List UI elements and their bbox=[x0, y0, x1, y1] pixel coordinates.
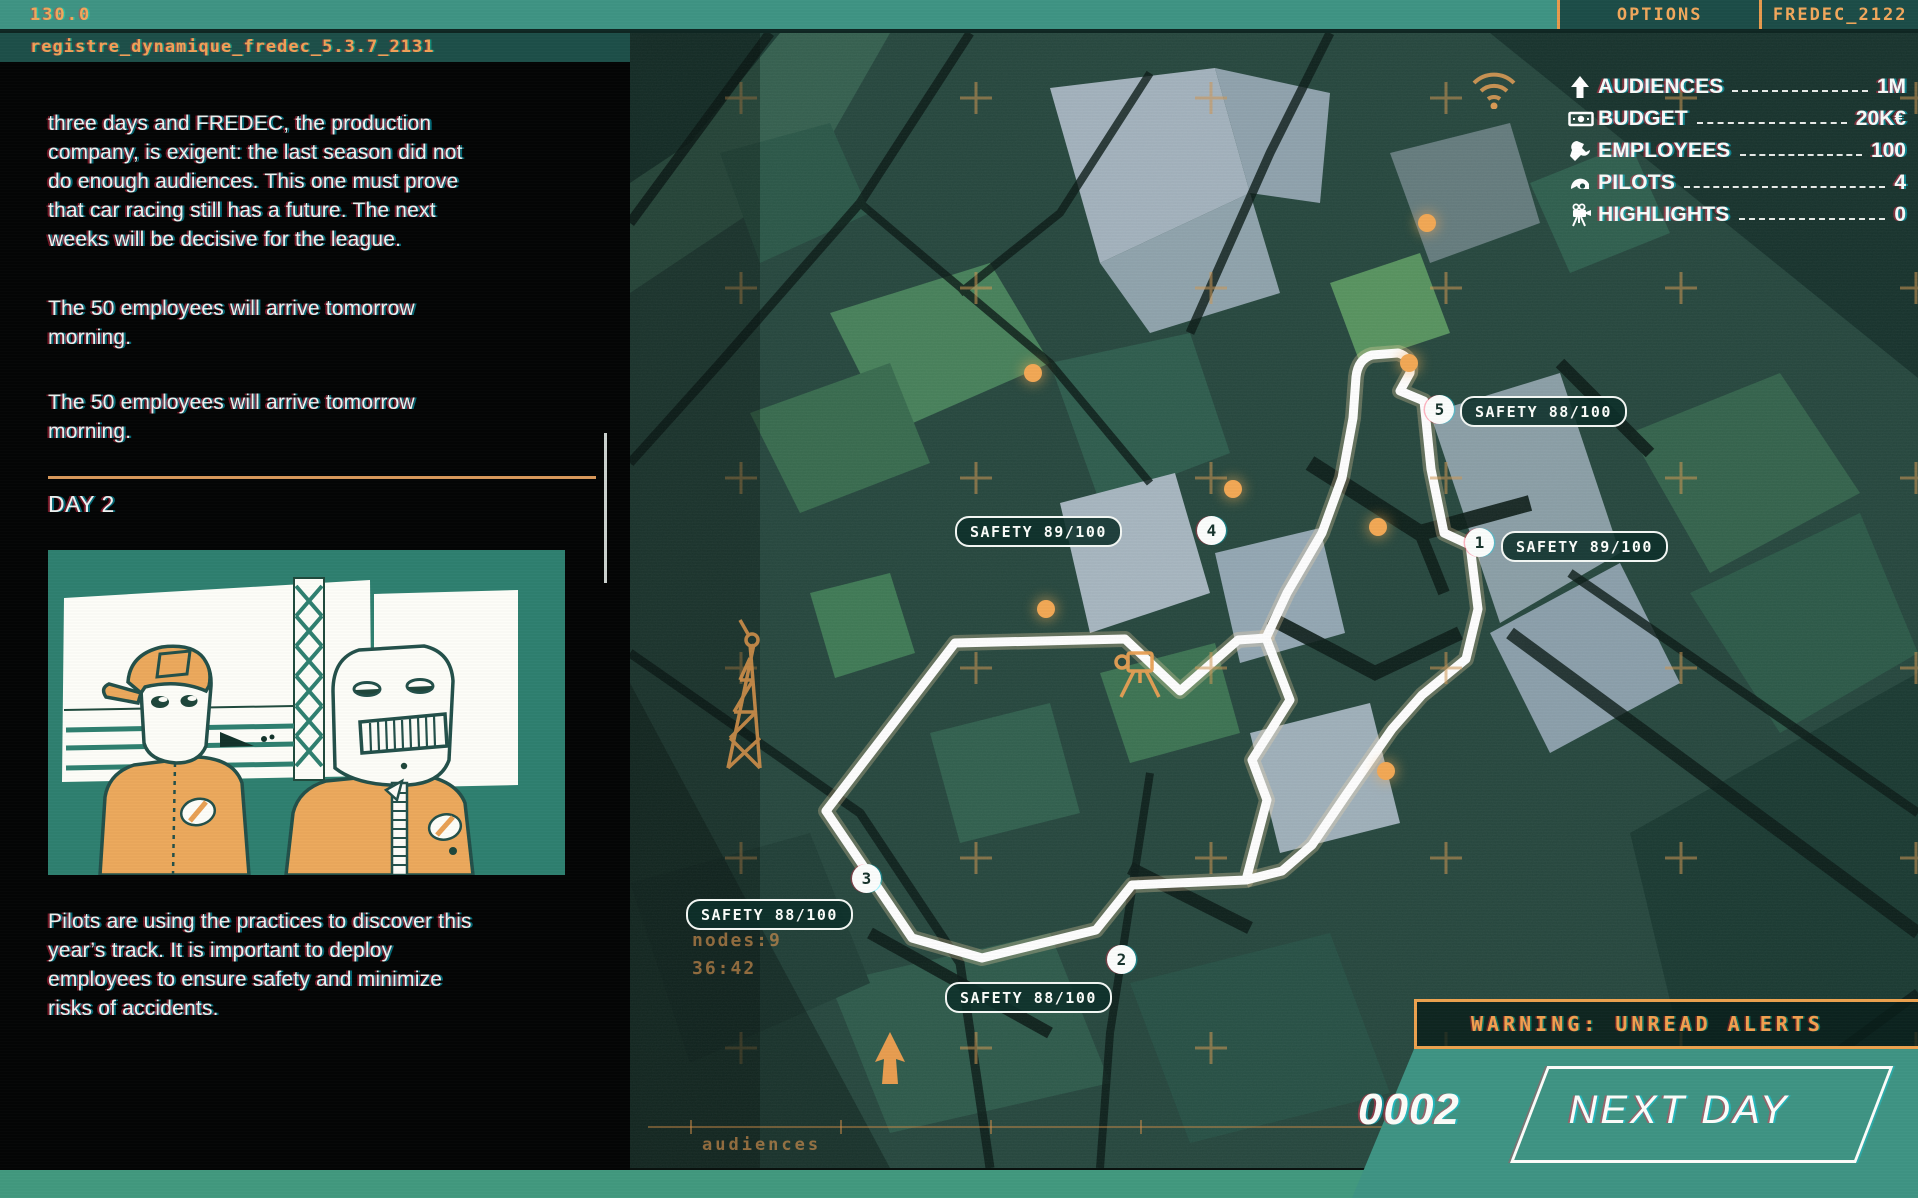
log-paragraph: The 50 employees will arrive tomorrow mo… bbox=[48, 388, 484, 446]
wrench-icon bbox=[1568, 139, 1598, 163]
warning-text: WARNING: UNREAD ALERTS bbox=[1471, 1012, 1824, 1036]
axis-tick bbox=[1140, 1120, 1142, 1134]
dash-leader bbox=[1684, 186, 1885, 188]
unread-alerts-warning[interactable]: WARNING: UNREAD ALERTS bbox=[1414, 999, 1918, 1049]
log-header-title: registre_dynamique_fredec_5.3.7_2131 bbox=[30, 37, 434, 57]
stats-panel: AUDIENCES 1M BUDGET 20K€ EMPLOYEES 100 P… bbox=[1568, 71, 1906, 231]
node-number-4[interactable]: 4 bbox=[1197, 516, 1226, 545]
dash-leader bbox=[1697, 122, 1847, 124]
audiences-axis-label: audiences bbox=[702, 1135, 821, 1155]
arrow-up-icon bbox=[1568, 75, 1598, 99]
track-node-dot bbox=[1224, 480, 1242, 498]
log-panel: three days and FREDEC, the production co… bbox=[0, 62, 630, 1170]
dash-leader bbox=[1739, 218, 1886, 220]
node-number-3[interactable]: 3 bbox=[852, 864, 881, 893]
day-divider bbox=[48, 476, 596, 479]
banknote-icon bbox=[1568, 107, 1598, 131]
stat-audiences: AUDIENCES 1M bbox=[1568, 71, 1906, 103]
options-label: OPTIONS bbox=[1617, 5, 1703, 25]
day-heading: DAY 2 bbox=[48, 491, 568, 523]
node-number-5[interactable]: 5 bbox=[1425, 395, 1454, 424]
nodes-counter: nodes:9 bbox=[692, 930, 782, 951]
track-node-dot bbox=[1400, 354, 1418, 372]
session-tab[interactable]: FREDEC_2122 bbox=[1759, 0, 1918, 29]
dash-leader bbox=[1740, 154, 1862, 156]
track-node-dot bbox=[1418, 214, 1436, 232]
direction-arrow-icon bbox=[872, 1032, 908, 1084]
stat-budget: BUDGET 20K€ bbox=[1568, 103, 1906, 135]
safety-badge-node-4[interactable]: SAFETY 89/100 bbox=[955, 516, 1122, 547]
track-node-dot bbox=[1377, 762, 1395, 780]
axis-tick bbox=[690, 1120, 692, 1134]
signal-wifi-icon bbox=[1468, 65, 1520, 109]
safety-badge-node-2[interactable]: SAFETY 88/100 bbox=[945, 982, 1112, 1013]
log-paragraph: The 50 employees will arrive tomorrow mo… bbox=[48, 294, 484, 352]
top-bar-right: OPTIONS FREDEC_2122 bbox=[1557, 0, 1918, 29]
safety-badge-node-5[interactable]: SAFETY 88/100 bbox=[1460, 396, 1627, 427]
stat-pilots: PILOTS 4 bbox=[1568, 167, 1906, 199]
log-scrollbar-thumb[interactable] bbox=[604, 433, 607, 583]
log-paragraph: Pilots are using the practices to discov… bbox=[48, 907, 484, 1023]
log-header-bar: registre_dynamique_fredec_5.3.7_2131 bbox=[0, 33, 630, 62]
crew-illustration-art bbox=[48, 550, 565, 875]
camera-marker-icon bbox=[1112, 645, 1168, 707]
axis-tick bbox=[840, 1120, 842, 1134]
track-node-dot bbox=[1369, 518, 1387, 536]
session-label: FREDEC_2122 bbox=[1773, 5, 1908, 25]
log-paragraph: three days and FREDEC, the production co… bbox=[48, 109, 484, 254]
crew-illustration bbox=[48, 550, 565, 875]
radio-tower-icon bbox=[698, 616, 798, 776]
stat-highlights: HIGHLIGHTS 0 bbox=[1568, 199, 1906, 231]
safety-badge-node-3[interactable]: SAFETY 88/100 bbox=[686, 899, 853, 930]
session-timer: 36:42 bbox=[692, 958, 756, 979]
helmet-icon bbox=[1568, 171, 1598, 195]
frequency-readout: 130.0 bbox=[30, 5, 91, 25]
node-number-2[interactable]: 2 bbox=[1107, 945, 1136, 974]
axis-tick bbox=[990, 1120, 992, 1134]
safety-badge-node-1[interactable]: SAFETY 89/100 bbox=[1501, 531, 1668, 562]
next-day-label: NEXT DAY bbox=[1490, 1088, 1868, 1133]
node-number-1[interactable]: 1 bbox=[1465, 528, 1494, 557]
camera-tripod-icon bbox=[1568, 203, 1598, 227]
track-map[interactable]: 5 SAFETY 88/100 SAFETY 89/100 4 1 SAFETY… bbox=[630, 33, 1918, 1168]
options-button[interactable]: OPTIONS bbox=[1557, 0, 1759, 29]
stat-employees: EMPLOYEES 100 bbox=[1568, 135, 1906, 167]
next-day-button[interactable]: NEXT DAY bbox=[1490, 1066, 1868, 1163]
dash-leader bbox=[1732, 90, 1867, 92]
log-content: three days and FREDEC, the production co… bbox=[48, 62, 568, 1023]
top-bar-divider bbox=[0, 29, 1918, 33]
track-node-dot bbox=[1037, 600, 1055, 618]
track-node-dot bbox=[1024, 364, 1042, 382]
day-counter: 0002 bbox=[1358, 1085, 1460, 1135]
